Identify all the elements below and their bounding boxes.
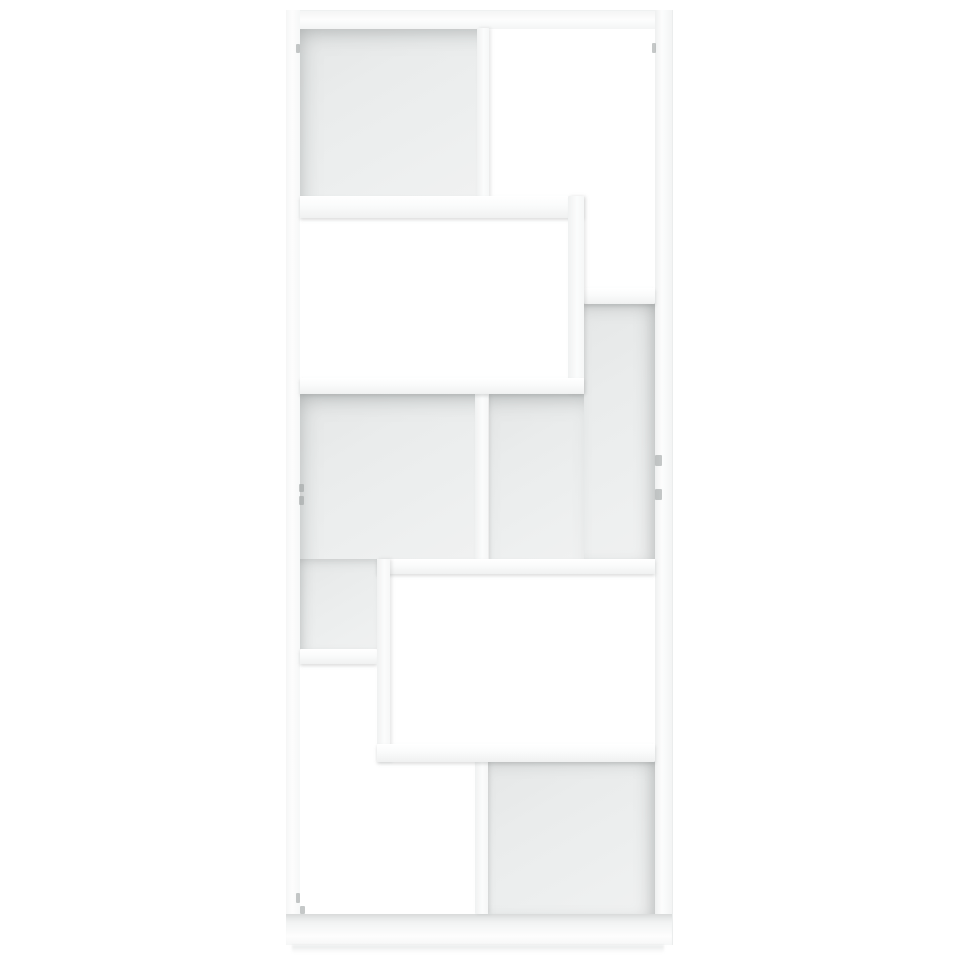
back-lower-left <box>300 559 377 650</box>
connector-mark <box>652 43 656 53</box>
bookshelf <box>0 0 960 960</box>
back-mid-right <box>489 394 584 559</box>
shelf-left <box>300 649 377 664</box>
bottom-panel <box>286 914 672 945</box>
box2-top-shelf <box>377 559 655 574</box>
back-right-upper <box>584 302 655 559</box>
box1-right-side <box>568 196 584 394</box>
back-mid-left <box>300 394 475 559</box>
connector-mark <box>296 893 300 903</box>
connector-mark <box>296 44 300 53</box>
box2-left-side <box>377 559 390 762</box>
box1-top-shelf <box>300 196 584 218</box>
divider-bottom <box>475 757 488 914</box>
divider-middle <box>475 394 488 561</box>
connector-mark <box>299 484 304 492</box>
box2-bottom-shelf <box>377 744 655 762</box>
back-bottom-right <box>488 757 655 914</box>
connector-mark <box>655 455 662 466</box>
connector-mark <box>300 906 305 914</box>
left-side-panel <box>286 10 300 945</box>
connector-mark <box>655 489 662 500</box>
floor-shadow <box>292 945 664 953</box>
right-side-panel <box>655 10 673 945</box>
connector-mark <box>299 496 304 505</box>
back-top-left <box>300 28 478 196</box>
divider-top <box>477 28 489 198</box>
shelf-right <box>584 288 655 304</box>
top-panel <box>286 10 672 29</box>
product-photo-canvas <box>0 0 960 960</box>
box1-bottom-shelf <box>300 378 584 394</box>
